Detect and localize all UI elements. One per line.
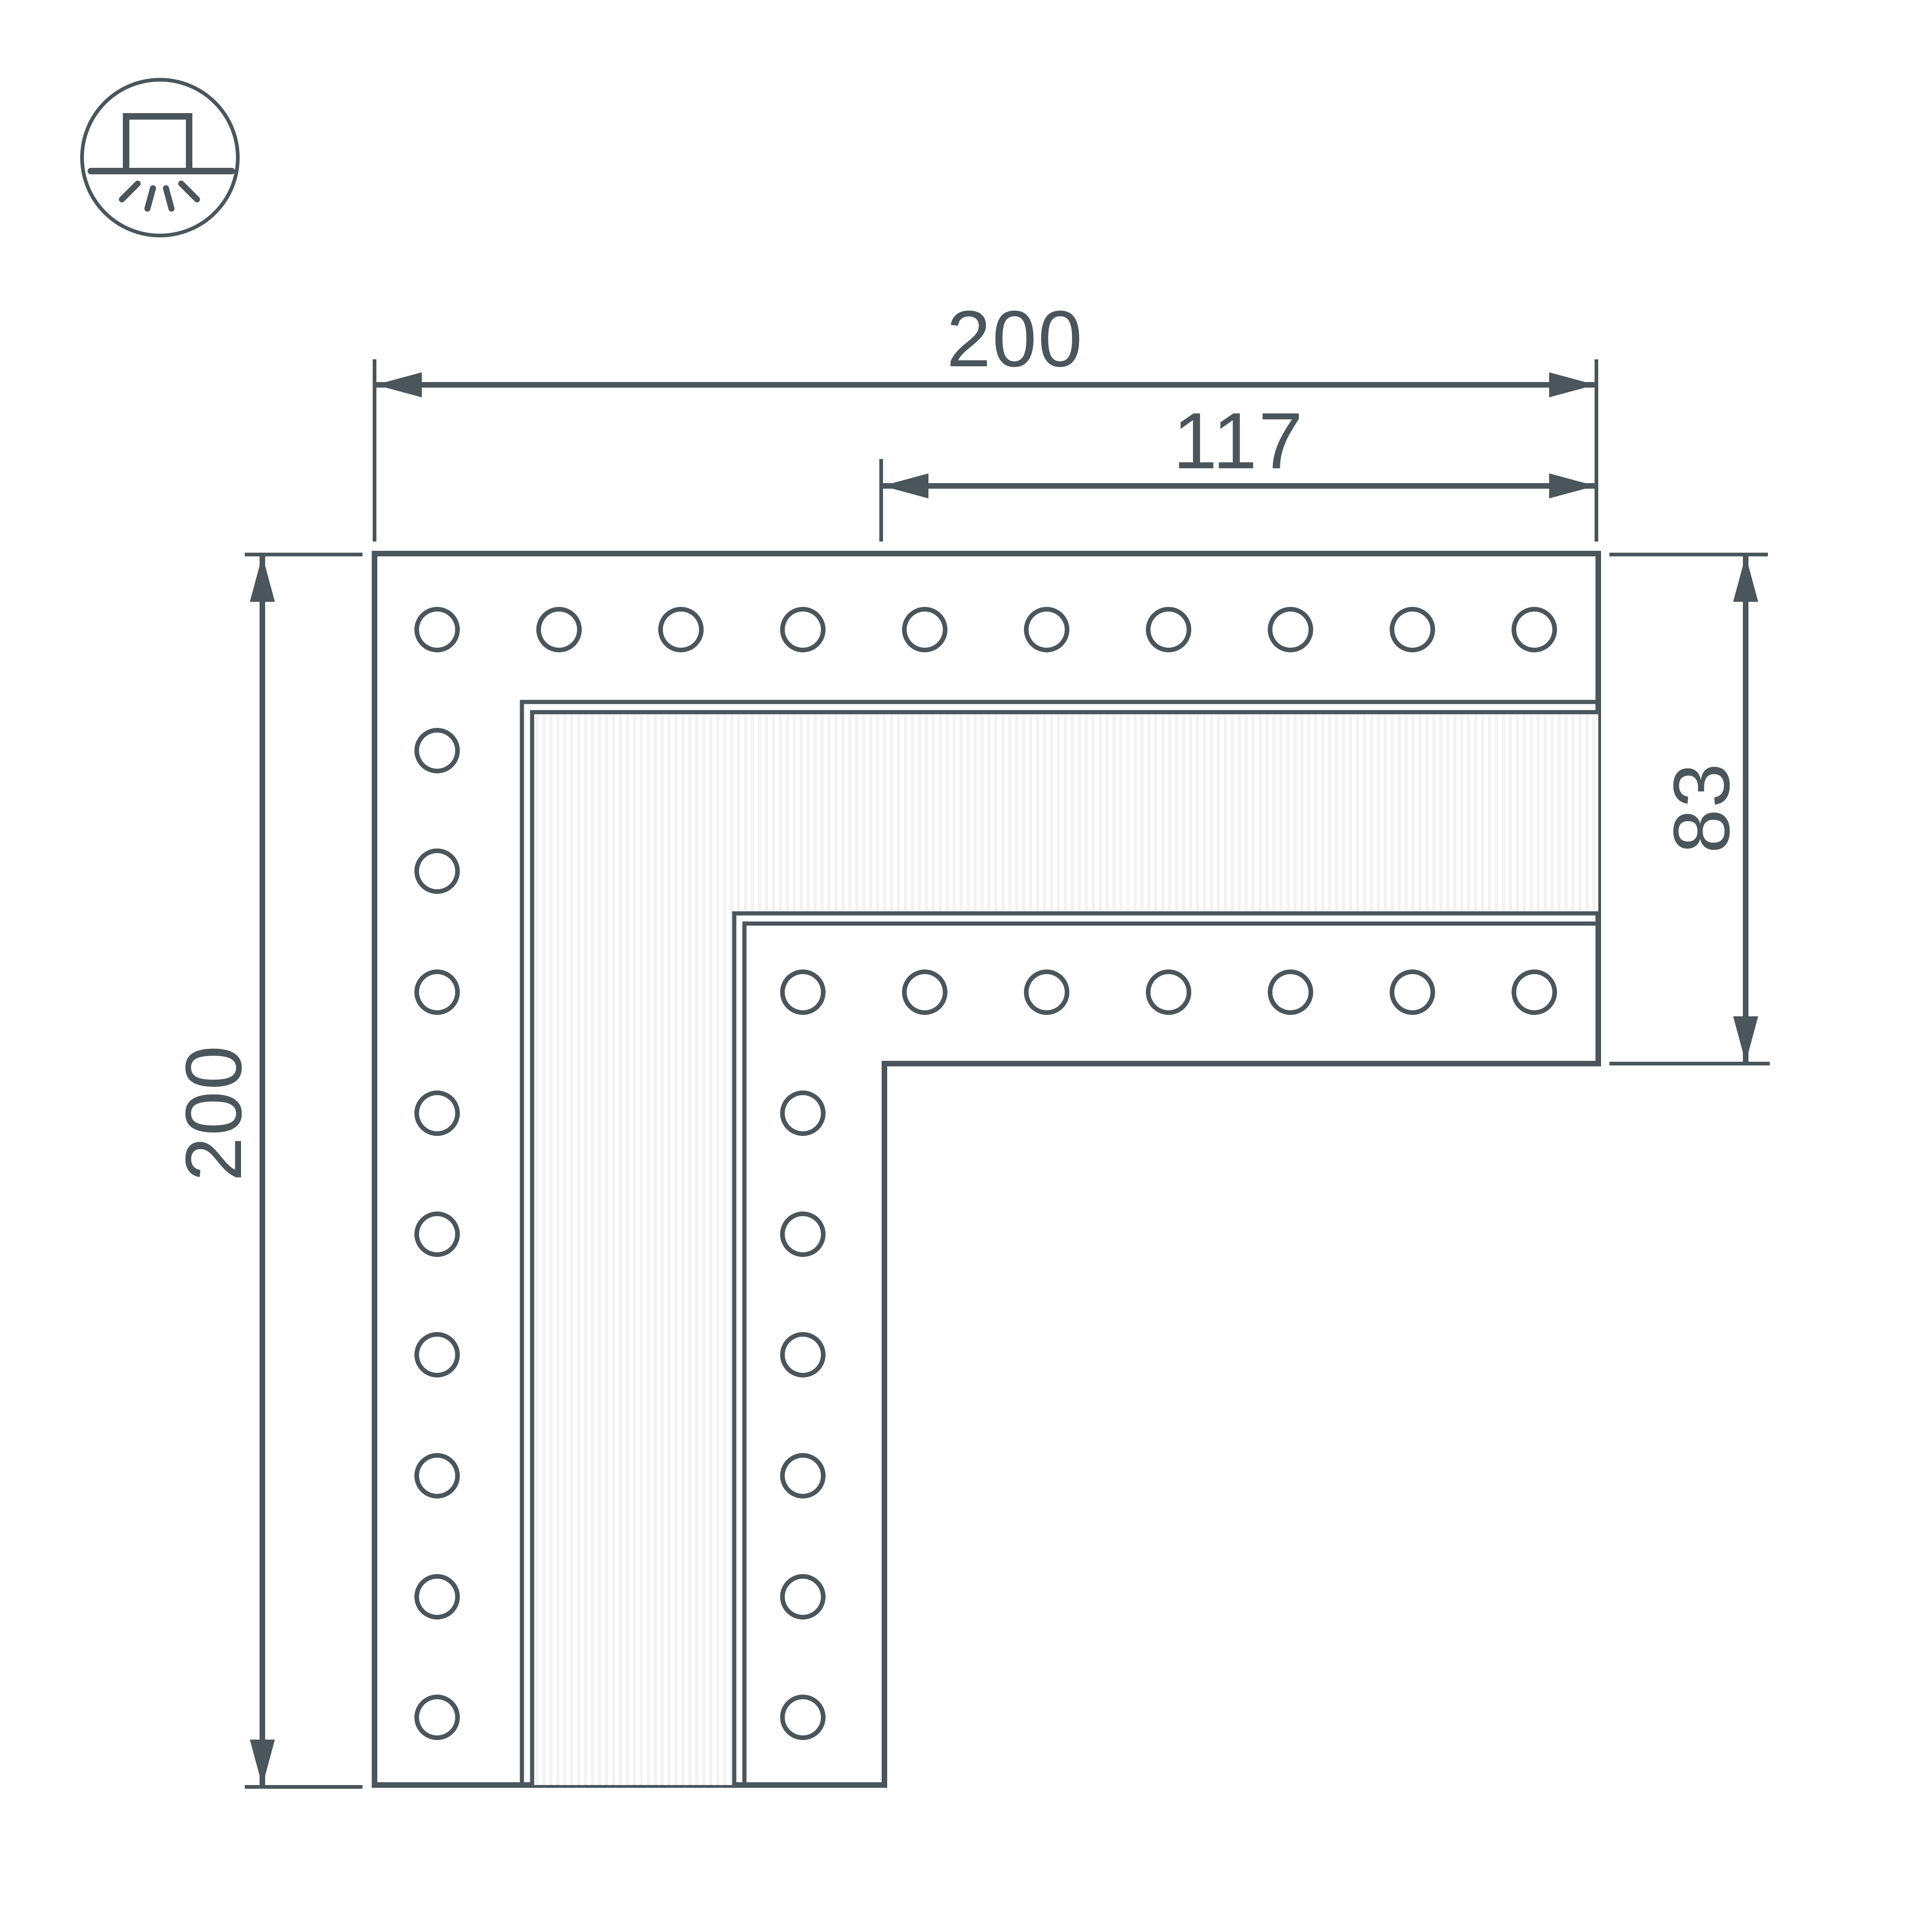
hole <box>782 1697 823 1738</box>
technical-drawing-page: 200 117 200 <box>0 0 1932 1932</box>
dim-leg-width: 83 <box>1609 555 1770 1064</box>
icon-light-rays <box>122 184 197 209</box>
diffuser-channel-strip <box>534 714 1598 1785</box>
light-ray-icon <box>147 188 153 209</box>
hole <box>539 609 579 650</box>
surface-mounted-light-icon <box>82 80 238 236</box>
arrow-left-icon <box>375 372 422 397</box>
arrow-up-icon <box>250 555 275 602</box>
hole <box>782 1455 823 1496</box>
hole <box>661 609 701 650</box>
light-ray-icon <box>181 184 197 199</box>
hole <box>1026 609 1067 650</box>
hole <box>1514 609 1555 650</box>
hole <box>417 1214 458 1255</box>
part-body <box>375 554 1598 1785</box>
light-ray-icon <box>166 188 172 209</box>
dim-left-height-label: 200 <box>169 1044 258 1181</box>
hole <box>1270 972 1311 1013</box>
hole <box>417 851 458 892</box>
hole <box>782 1093 823 1134</box>
dim-left-height: 200 <box>169 555 362 1787</box>
hole <box>782 1576 823 1617</box>
arrow-left-icon <box>882 473 928 498</box>
hole <box>1148 972 1189 1013</box>
hole <box>1392 972 1433 1013</box>
dim-inner-width: 117 <box>881 396 1595 542</box>
hole <box>417 609 458 650</box>
hole <box>417 1697 458 1738</box>
hole <box>1148 609 1189 650</box>
hole <box>417 1455 458 1496</box>
dim-inner-width-label: 117 <box>1173 396 1304 485</box>
hole <box>904 972 945 1013</box>
arrow-right-icon <box>1549 372 1595 397</box>
hole <box>782 1214 823 1255</box>
hole <box>1270 609 1311 650</box>
hole <box>417 1576 458 1617</box>
hole <box>904 609 945 650</box>
arrow-down-icon <box>1733 1016 1758 1063</box>
dim-top-width-label: 200 <box>947 294 1084 383</box>
hole <box>1026 972 1067 1013</box>
dim-leg-width-label: 83 <box>1657 762 1746 853</box>
hole <box>782 609 823 650</box>
icon-fixture-body <box>126 116 189 171</box>
hole <box>417 1093 458 1134</box>
hole <box>417 730 458 771</box>
hole <box>1392 609 1433 650</box>
dim-top-width: 200 <box>375 294 1596 542</box>
icon-circle-border <box>82 80 238 236</box>
hole <box>417 972 458 1013</box>
hole <box>1514 972 1555 1013</box>
arrow-down-icon <box>250 1740 275 1786</box>
arrow-right-icon <box>1549 473 1595 498</box>
arrow-up-icon <box>1733 555 1758 602</box>
light-ray-icon <box>122 184 138 199</box>
l-corner-dimension-drawing: 200 117 200 <box>0 0 1932 1932</box>
hole <box>782 972 823 1013</box>
hole <box>782 1334 823 1375</box>
hole <box>417 1334 458 1375</box>
